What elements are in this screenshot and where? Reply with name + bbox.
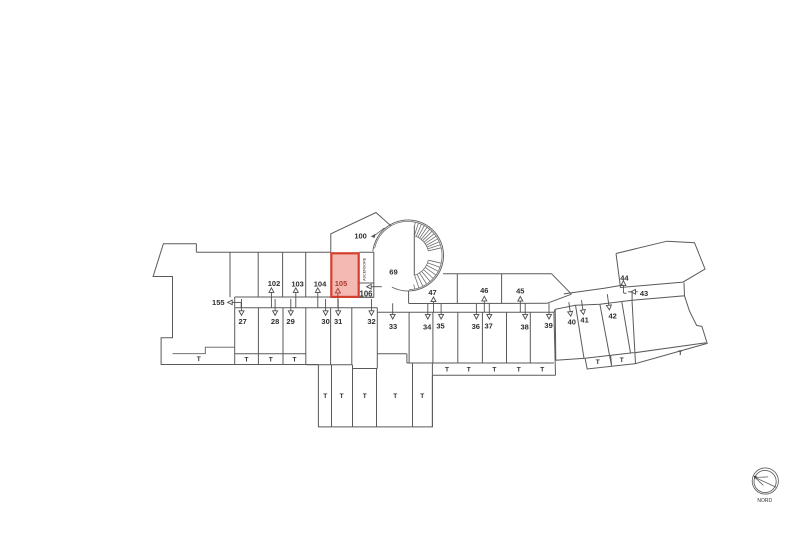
svg-text:T: T <box>467 367 471 374</box>
svg-text:T: T <box>293 357 297 364</box>
svg-text:29: 29 <box>286 317 294 326</box>
svg-text:45: 45 <box>516 286 524 295</box>
svg-text:T: T <box>596 359 600 366</box>
svg-text:38: 38 <box>521 322 529 331</box>
svg-text:T: T <box>363 393 367 400</box>
svg-text:T: T <box>340 393 344 400</box>
svg-text:155: 155 <box>212 298 225 307</box>
svg-text:37: 37 <box>485 322 493 331</box>
svg-text:100: 100 <box>354 232 367 241</box>
svg-text:27: 27 <box>239 317 247 326</box>
svg-text:44: 44 <box>620 273 629 282</box>
svg-text:T: T <box>517 367 521 374</box>
svg-text:105: 105 <box>335 279 348 288</box>
svg-text:33: 33 <box>389 322 397 331</box>
svg-text:T: T <box>445 367 449 374</box>
svg-text:T: T <box>492 367 496 374</box>
svg-text:T: T <box>420 393 424 400</box>
svg-text:ASCENSORE: ASCENSORE <box>362 257 366 281</box>
svg-text:104: 104 <box>314 280 327 289</box>
svg-text:30: 30 <box>321 317 329 326</box>
svg-text:NORD: NORD <box>757 498 772 504</box>
svg-text:43: 43 <box>640 289 648 298</box>
svg-text:35: 35 <box>436 321 444 330</box>
svg-text:T: T <box>245 357 249 364</box>
svg-text:T: T <box>678 350 682 357</box>
svg-text:T: T <box>197 356 201 363</box>
svg-text:46: 46 <box>480 286 488 295</box>
svg-text:T: T <box>620 357 624 364</box>
svg-text:T: T <box>393 393 397 400</box>
svg-text:103: 103 <box>291 280 304 289</box>
svg-text:31: 31 <box>334 317 342 326</box>
svg-text:34: 34 <box>423 322 432 331</box>
svg-text:39: 39 <box>544 321 552 330</box>
svg-text:47: 47 <box>428 288 436 297</box>
svg-text:41: 41 <box>580 315 588 324</box>
svg-text:36: 36 <box>472 322 480 331</box>
svg-text:102: 102 <box>268 279 281 288</box>
svg-text:28: 28 <box>271 317 279 326</box>
svg-text:40: 40 <box>568 317 576 326</box>
svg-text:42: 42 <box>609 312 617 321</box>
svg-text:T: T <box>323 393 327 400</box>
svg-text:69: 69 <box>389 268 397 277</box>
svg-text:106: 106 <box>359 289 373 298</box>
svg-text:T: T <box>540 367 544 374</box>
svg-text:32: 32 <box>367 317 375 326</box>
svg-text:T: T <box>269 357 273 364</box>
